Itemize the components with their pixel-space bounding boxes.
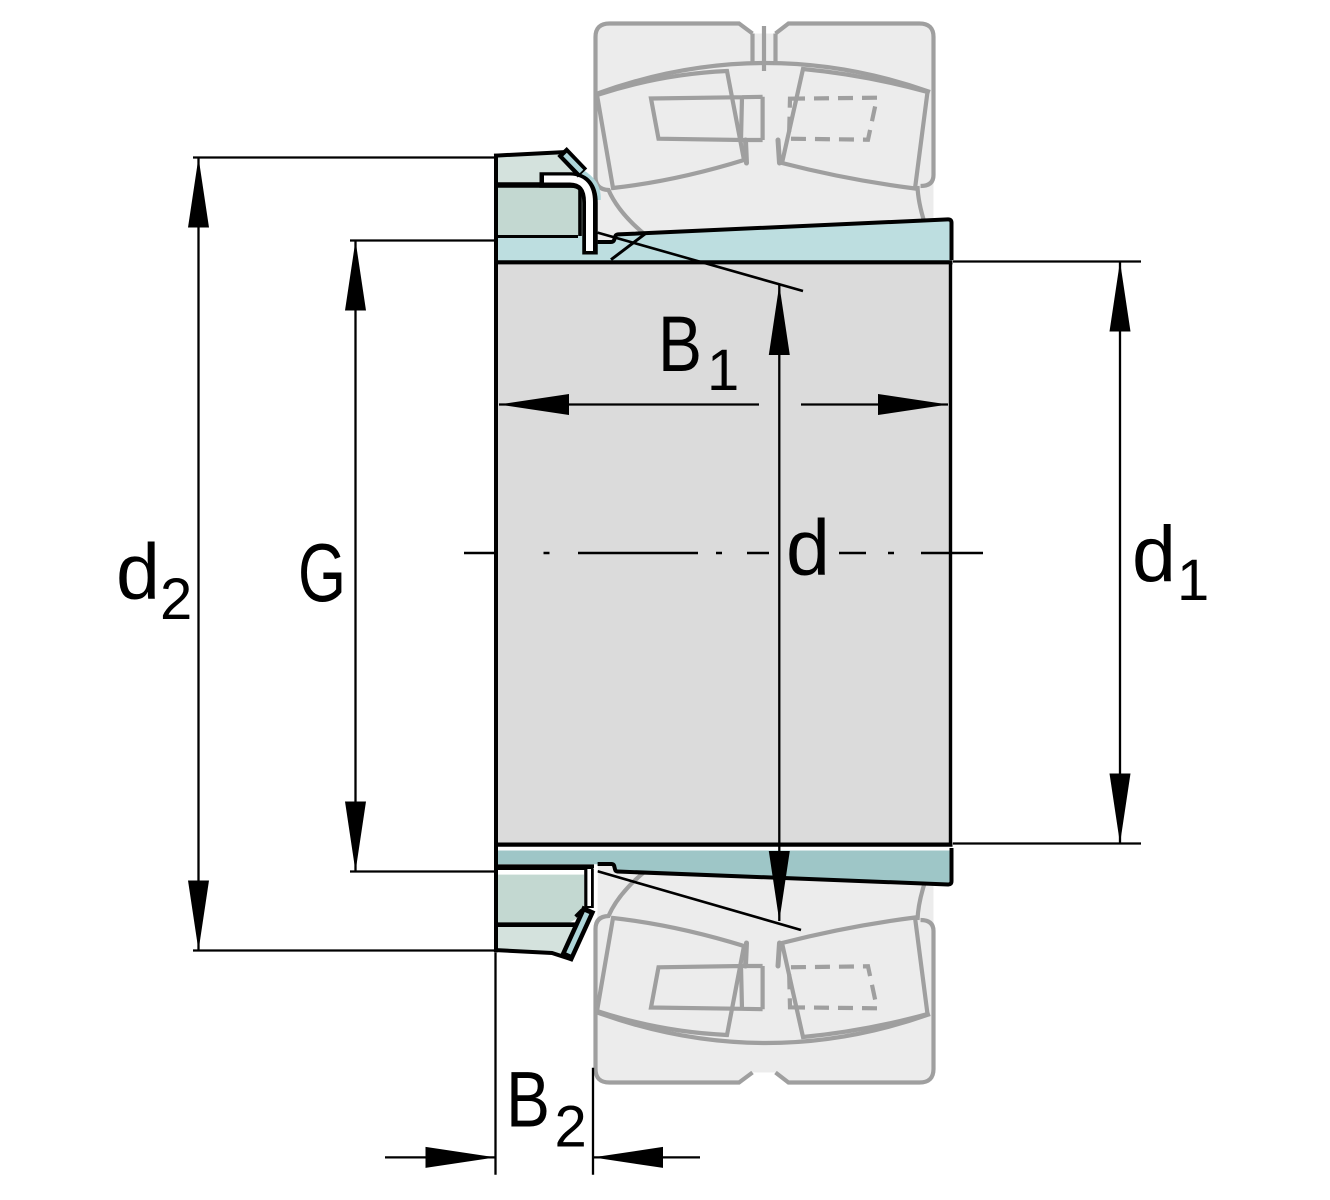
- svg-text:B: B: [658, 299, 702, 388]
- svg-text:B: B: [506, 1055, 550, 1144]
- svg-text:1: 1: [707, 338, 739, 403]
- svg-text:2: 2: [555, 1095, 587, 1160]
- svg-text:G: G: [298, 526, 346, 619]
- svg-text:2: 2: [160, 567, 192, 632]
- svg-text:d: d: [786, 502, 830, 591]
- svg-text:1: 1: [1177, 548, 1209, 613]
- svg-text:d: d: [1132, 509, 1176, 598]
- svg-text:d: d: [116, 527, 160, 616]
